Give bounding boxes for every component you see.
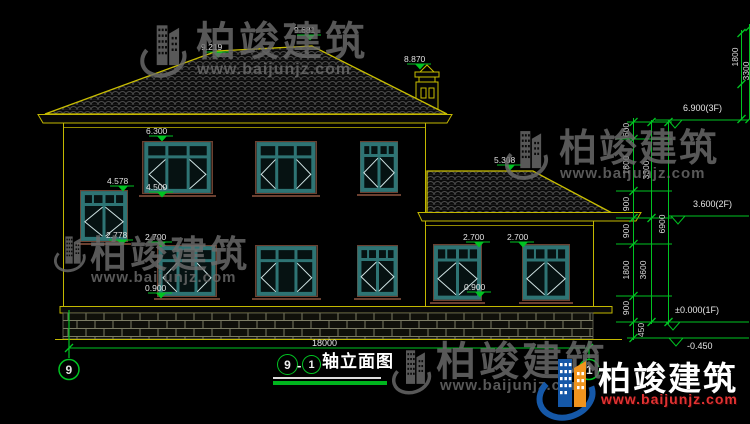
watermark-brand: 柏竣建筑 xyxy=(559,130,719,168)
drawing-title: 轴立面图 xyxy=(322,352,394,372)
main-eave-band xyxy=(38,115,452,124)
dim-tr-3300: 3300 xyxy=(741,54,750,88)
footer-logo: 柏竣建筑 www.baijunjz.com xyxy=(535,352,750,424)
title-underline-white xyxy=(273,377,381,379)
window-annex-right xyxy=(522,245,569,301)
dim-900c: 900 xyxy=(621,291,631,325)
elev-main-eave: 6.300 xyxy=(146,127,167,136)
elev-annex-head-r: 2.700 xyxy=(507,233,528,242)
watermark-brand: 柏竣建筑 xyxy=(196,22,368,62)
cad-elevation-screenshot: 9 1 9.219 9.681 8.870 6.300 4.578 4.500 … xyxy=(0,0,750,424)
dim-3600: 3600 xyxy=(638,253,648,287)
window-1f-middle xyxy=(256,246,318,297)
title-axis-start: 9 xyxy=(277,354,298,375)
level-3f: 6.900(3F) xyxy=(683,104,722,113)
watermark-left: 柏竣建筑 www.baijunjz.com xyxy=(54,228,264,286)
title-underline-green xyxy=(273,381,387,385)
window-2f-middle xyxy=(256,142,317,194)
level-2f: 3.600(2F) xyxy=(693,200,732,209)
level-ground: -0.450 xyxy=(687,342,713,351)
brick-base xyxy=(55,307,622,340)
brand-logo-icon xyxy=(535,354,601,424)
window-1f-right xyxy=(357,246,397,297)
watermark-logo-icon xyxy=(54,230,88,278)
dim-total-width: 18000 xyxy=(312,339,337,348)
watermark-url: www.baijunjz.com xyxy=(197,62,351,78)
watermark-url: www.baijunjz.com xyxy=(560,166,705,181)
elev-chimney: 8.870 xyxy=(404,55,425,64)
elev-f2-sill: 4.500 xyxy=(146,183,167,192)
dim-6900: 6900 xyxy=(657,207,667,241)
elev-annex-sill: 0.900 xyxy=(464,283,485,292)
level-1f: ±0.000(1F) xyxy=(675,306,719,315)
elev-stair-top: 4.578 xyxy=(107,177,128,186)
dim-1800b: 1800 xyxy=(621,253,631,287)
watermark-url: www.baijunjz.com xyxy=(91,270,236,285)
watermark-logo-icon xyxy=(392,347,434,397)
dim-900b: 900 xyxy=(621,214,631,248)
watermark-logo-icon xyxy=(138,22,192,80)
watermark-brand: 柏竣建筑 xyxy=(90,236,250,273)
axis-bubble-9: 9 xyxy=(66,364,73,376)
window-2f-right xyxy=(360,142,397,193)
footer-url-text: www.baijunjz.com xyxy=(601,392,738,406)
elev-annex-head-l: 2.700 xyxy=(463,233,484,242)
watermark-logo-icon xyxy=(503,128,553,182)
dim-tr-1800: 1800 xyxy=(730,40,740,74)
annex-eave-band xyxy=(418,213,641,222)
title-axis-end: 1 xyxy=(302,355,321,374)
title-separator: - xyxy=(297,359,301,372)
watermark-right: 柏竣建筑 www.baijunjz.com xyxy=(503,126,743,186)
dim-450: 450 xyxy=(636,313,646,347)
watermark-top: 柏竣建筑 www.baijunjz.com xyxy=(138,20,388,82)
